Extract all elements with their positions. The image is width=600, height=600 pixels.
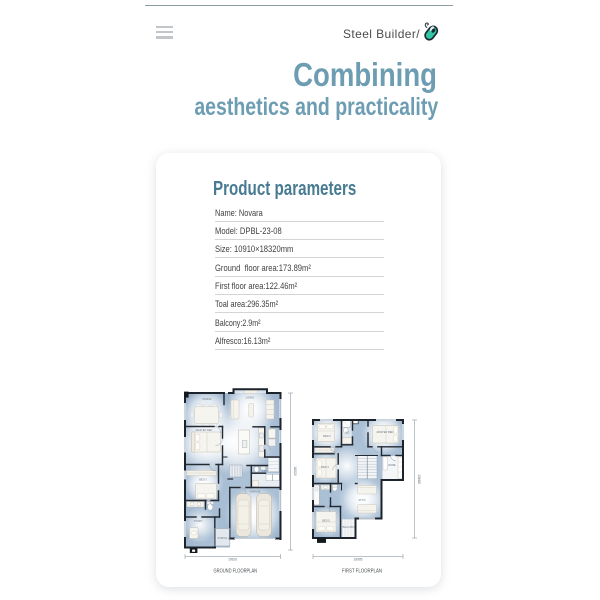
svg-text:18320: 18320	[293, 466, 297, 476]
svg-text:PORCH: PORCH	[218, 536, 227, 540]
svg-text:BED 3: BED 3	[199, 478, 207, 482]
svg-text:13685: 13685	[417, 474, 421, 484]
svg-text:GARAGE: GARAGE	[249, 490, 260, 494]
svg-text:STUDY: STUDY	[194, 519, 203, 523]
svg-text:MASTER BED: MASTER BED	[196, 428, 213, 432]
svg-text:FIRST FLOORPLAN: FIRST FLOORPLAN	[342, 568, 382, 574]
svg-text:ATTIC: ATTIC	[358, 498, 365, 502]
svg-text:LIVING: LIVING	[246, 396, 255, 400]
svg-text:BED 2: BED 2	[323, 434, 331, 438]
svg-text:10910: 10910	[228, 558, 237, 562]
svg-text:10905: 10905	[354, 558, 363, 562]
svg-text:WC: WC	[345, 431, 349, 435]
svg-text:MASTER BED: MASTER BED	[377, 430, 394, 434]
svg-text:DINING: DINING	[202, 397, 211, 401]
svg-text:ROBE: ROBE	[388, 463, 396, 467]
svg-text:BED 4: BED 4	[321, 465, 329, 469]
svg-text:BALCONY: BALCONY	[343, 525, 356, 529]
svg-text:GROUND FLOORPLAN: GROUND FLOORPLAN	[214, 568, 258, 574]
svg-text:BED 5: BED 5	[322, 519, 330, 523]
svg-text:LDY: LDY	[262, 469, 267, 473]
